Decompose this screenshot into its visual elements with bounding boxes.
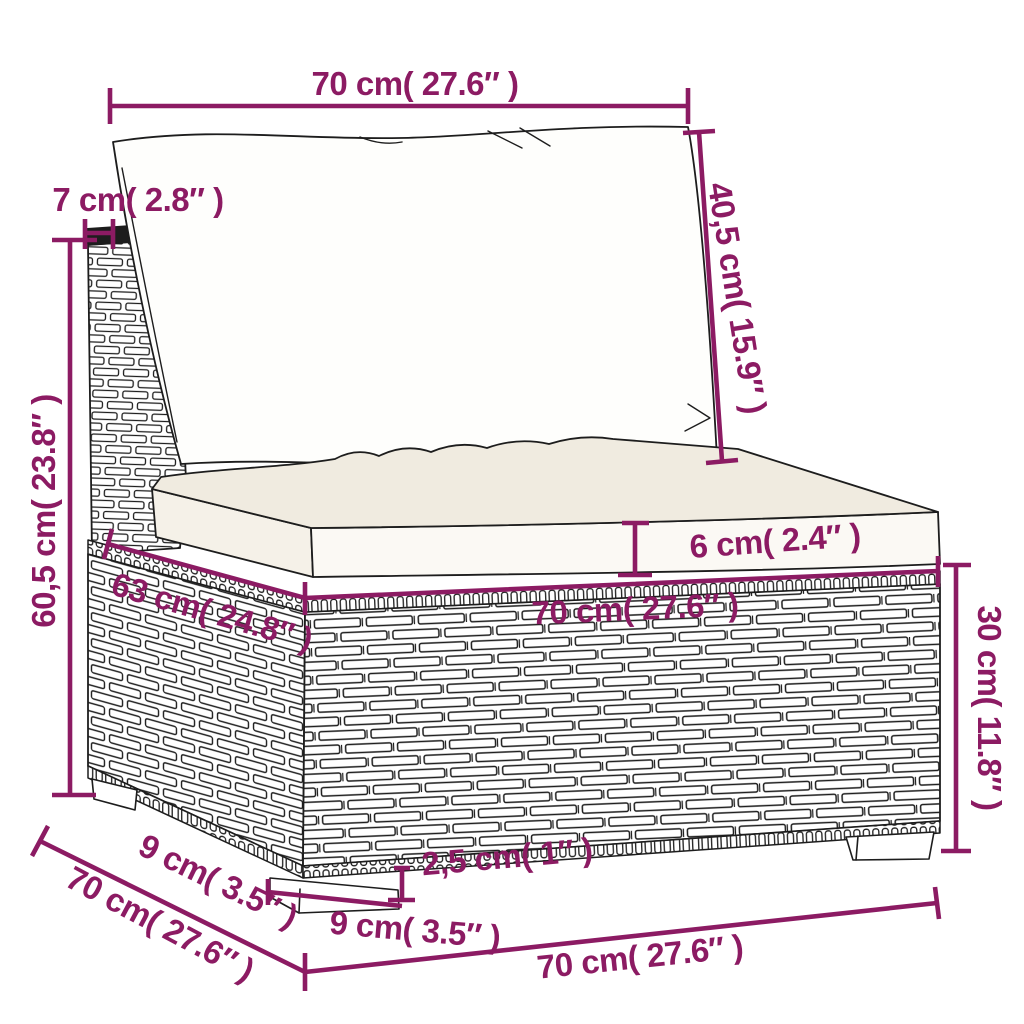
back-cushion [113,127,717,466]
front-right-leg [846,832,934,860]
dim-label-back-panel-thickness: 7 cm( 2.8″ ) [52,181,223,219]
dim-label-base-height: 30 cm( 11.8″ ) [970,605,1008,810]
sofa-dimension-diagram: 70 cm( 27.6″ ) 7 cm( 2.8″ ) 40,5 cm( 15.… [0,0,1024,1024]
dim-label-total-height: 60,5 cm( 23.8″ ) [25,394,63,627]
dim-label-back-cushion-width: 70 cm( 27.6″ ) [312,65,519,103]
dim-line-base-height [941,565,971,851]
